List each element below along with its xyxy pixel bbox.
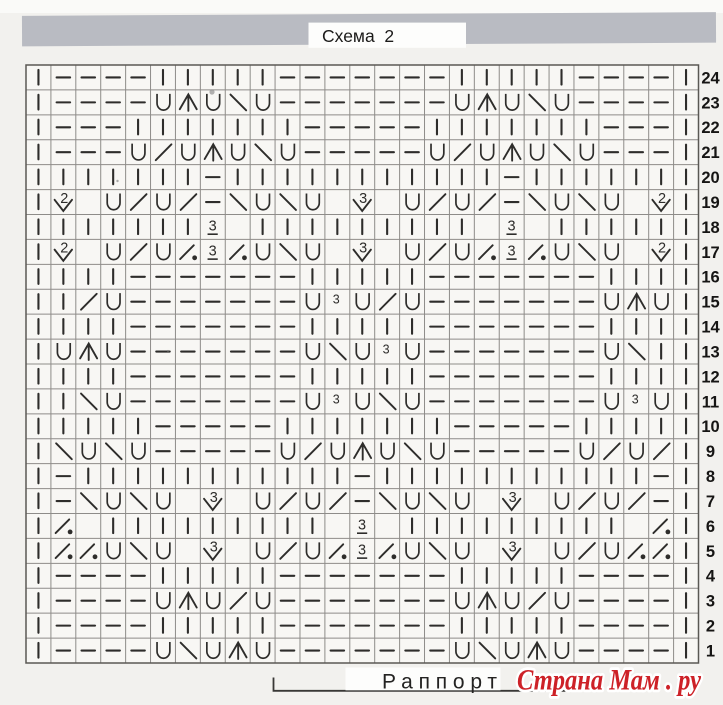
svg-text:21: 21 — [701, 144, 719, 162]
svg-text:14: 14 — [701, 319, 720, 337]
svg-text:3: 3 — [706, 593, 715, 611]
svg-text:1: 1 — [706, 642, 715, 660]
svg-text:Раппорт: Раппорт — [382, 671, 503, 694]
svg-text:12: 12 — [701, 368, 719, 386]
svg-text:5: 5 — [706, 543, 715, 561]
svg-text:7: 7 — [706, 493, 715, 511]
svg-text:13: 13 — [701, 343, 719, 361]
svg-text:17: 17 — [701, 244, 719, 262]
svg-text:2: 2 — [706, 618, 715, 636]
svg-text:18: 18 — [701, 219, 719, 237]
svg-text:24: 24 — [701, 69, 720, 87]
svg-text:22: 22 — [701, 119, 719, 137]
svg-text:6: 6 — [706, 518, 715, 536]
svg-text:8: 8 — [706, 468, 715, 486]
svg-text:9: 9 — [706, 443, 715, 461]
svg-text:11: 11 — [702, 393, 719, 411]
svg-text:10: 10 — [701, 418, 719, 436]
svg-text:20: 20 — [701, 169, 719, 187]
svg-text:15: 15 — [701, 294, 719, 312]
svg-text:4: 4 — [706, 568, 716, 586]
svg-text:19: 19 — [701, 194, 719, 212]
svg-text:Схема 2: Схема 2 — [322, 26, 394, 46]
svg-text:16: 16 — [701, 269, 719, 287]
svg-text:23: 23 — [701, 94, 719, 112]
svg-text:Страна Мам . ру: Страна Мам . ру — [517, 664, 702, 697]
